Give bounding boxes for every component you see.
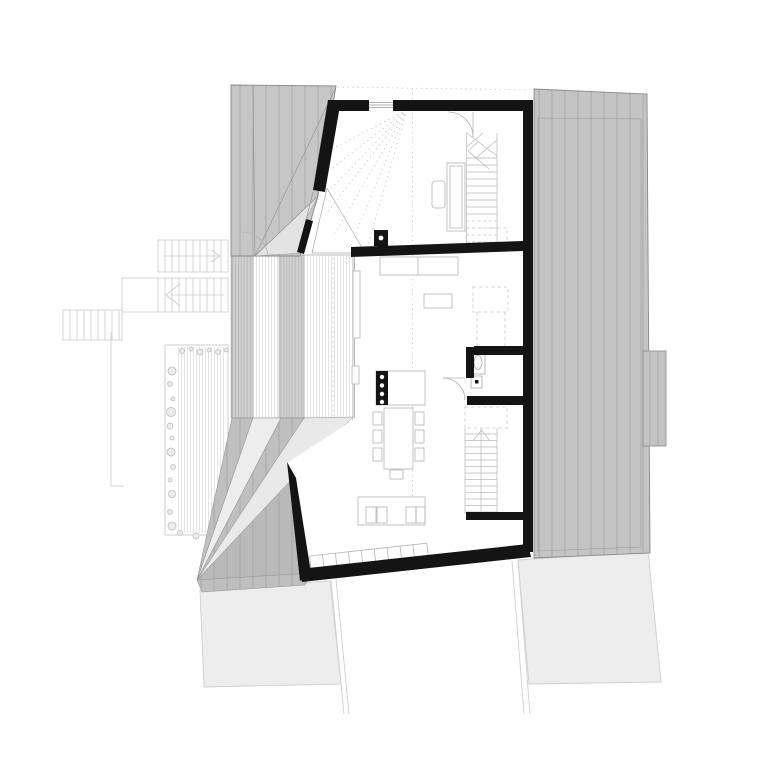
work-desk: [358, 497, 425, 525]
stair-flight-lower: [63, 310, 122, 340]
column-dot: [379, 236, 384, 241]
roof-right: [534, 89, 666, 558]
neighbor-building-right: [518, 551, 661, 684]
sideboard-west-2: [352, 366, 359, 384]
neighbor-building-left: [200, 581, 341, 687]
work-desk-group: [358, 497, 425, 525]
window-north: [369, 100, 393, 111]
kitchen-island: [376, 371, 425, 405]
wall-east: [523, 100, 533, 552]
chair-upper: [432, 181, 445, 208]
property-line: [111, 332, 124, 486]
sideboard-west-1: [353, 271, 360, 338]
floor-plan-page: [0, 0, 780, 780]
wall-bath-left: [466, 347, 474, 378]
wall-stair-stub: [466, 512, 523, 520]
roof-strip-over-deck-1: [231, 255, 253, 418]
roof-strip-over-deck-2: [279, 255, 304, 418]
kitchen-counter: [380, 257, 458, 275]
wall-north-right: [393, 100, 533, 111]
wall-bath-top: [474, 346, 523, 355]
wall-bath-bottom: [467, 396, 523, 405]
side-table: [424, 294, 452, 308]
site-plan-svg: [0, 0, 780, 780]
dining-table: [384, 408, 413, 469]
eave-dotted-guide: [333, 87, 534, 90]
chimney: [643, 351, 666, 446]
